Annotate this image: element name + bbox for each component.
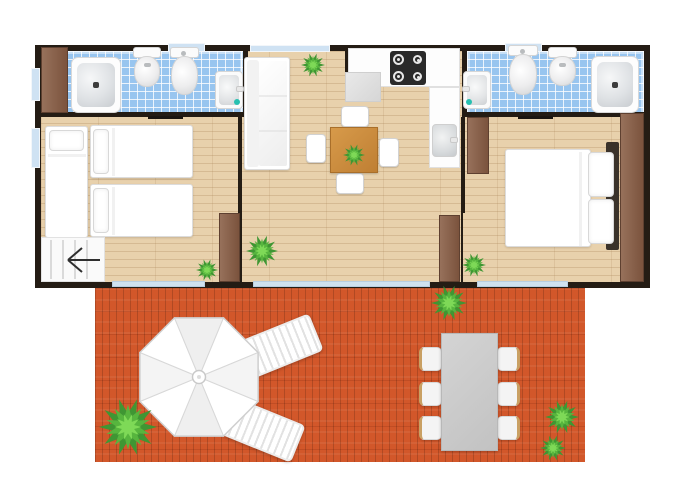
shower-right (591, 56, 639, 113)
glass-door-living (253, 281, 430, 287)
wardrobe-entrance-arrow (41, 237, 105, 282)
wardrobe-bedroom-right-top (467, 117, 489, 174)
partition-left-bedroom (238, 117, 242, 213)
bathroom-left-wall-bottom (41, 112, 248, 117)
glass-door-bedroom-left (112, 281, 205, 287)
window-left-bedroom-side (31, 128, 40, 168)
partition-right-bedroom (461, 117, 465, 213)
faucet-icon (462, 86, 470, 92)
toilet-left (170, 47, 199, 95)
dining-chair-left (306, 134, 326, 163)
dining-chair-top (341, 106, 369, 127)
garden-table (441, 333, 498, 451)
faucet-icon (236, 86, 244, 92)
bidet-left (133, 47, 161, 87)
toilet-right (508, 45, 538, 95)
window-top-living (250, 45, 330, 52)
washbasin-left (215, 71, 243, 109)
shower-drain-icon (93, 82, 99, 88)
kitchen-sink (432, 124, 457, 157)
pillow (49, 130, 84, 151)
burner-icon (393, 54, 404, 65)
plant-living-top (301, 53, 325, 77)
dining-chair-right (379, 138, 399, 167)
door-leaf-left-bedroom (219, 213, 240, 282)
plant-deck-right-large (545, 400, 579, 434)
plant-deck-right-small (540, 435, 566, 461)
plant-on-table (343, 144, 365, 166)
garden-chair-right-2 (497, 382, 520, 406)
pillow-bottom (588, 199, 614, 244)
shower-left (71, 57, 121, 113)
single-bed-bottom (90, 184, 193, 237)
plant-left-bedroom (196, 259, 218, 281)
bathroom-left-sliding-door (148, 116, 183, 119)
double-bed-duvet (505, 149, 591, 247)
left-arrow-icon (68, 248, 100, 272)
plant-deck-left-large (99, 398, 157, 456)
window-left-bathroom-side (31, 68, 40, 101)
wardrobe-bathroom-left (41, 47, 68, 113)
pillow (93, 129, 109, 174)
burner-icon (413, 72, 422, 81)
garden-chair-right-1 (497, 347, 520, 371)
dining-chair-bottom (336, 173, 364, 194)
single-bed-top (90, 125, 193, 178)
plant-right-door (462, 253, 486, 277)
bidet-right (548, 47, 577, 86)
burner-icon (393, 71, 404, 82)
drain-dot-icon (234, 99, 240, 105)
kitchen-appliance (345, 72, 381, 102)
garden-chair-left-3 (419, 416, 442, 440)
drain-dot-icon (466, 99, 472, 105)
single-bed-vertical (45, 126, 88, 238)
hob-4-burners (390, 51, 426, 85)
pillow-top (588, 152, 614, 197)
garden-chair-left-1 (419, 347, 442, 371)
plant-deck-top (431, 285, 467, 321)
wardrobe-bedroom-right-side (620, 113, 644, 282)
pillow (93, 188, 109, 233)
corner-sofa (244, 57, 290, 170)
bathroom-right-sliding-door (518, 116, 553, 119)
garden-chair-left-2 (419, 382, 442, 406)
faucet-icon (450, 137, 458, 143)
floorplan-canvas (0, 0, 686, 500)
washbasin-right (463, 71, 491, 109)
garden-chair-right-3 (497, 416, 520, 440)
door-leaf-right-bedroom (439, 215, 460, 282)
glass-door-bedroom-right (477, 281, 568, 287)
shower-drain-icon (612, 82, 618, 88)
plant-left-door (246, 235, 278, 267)
partition-left-bedroom-low (240, 213, 242, 282)
burner-icon (413, 55, 422, 64)
